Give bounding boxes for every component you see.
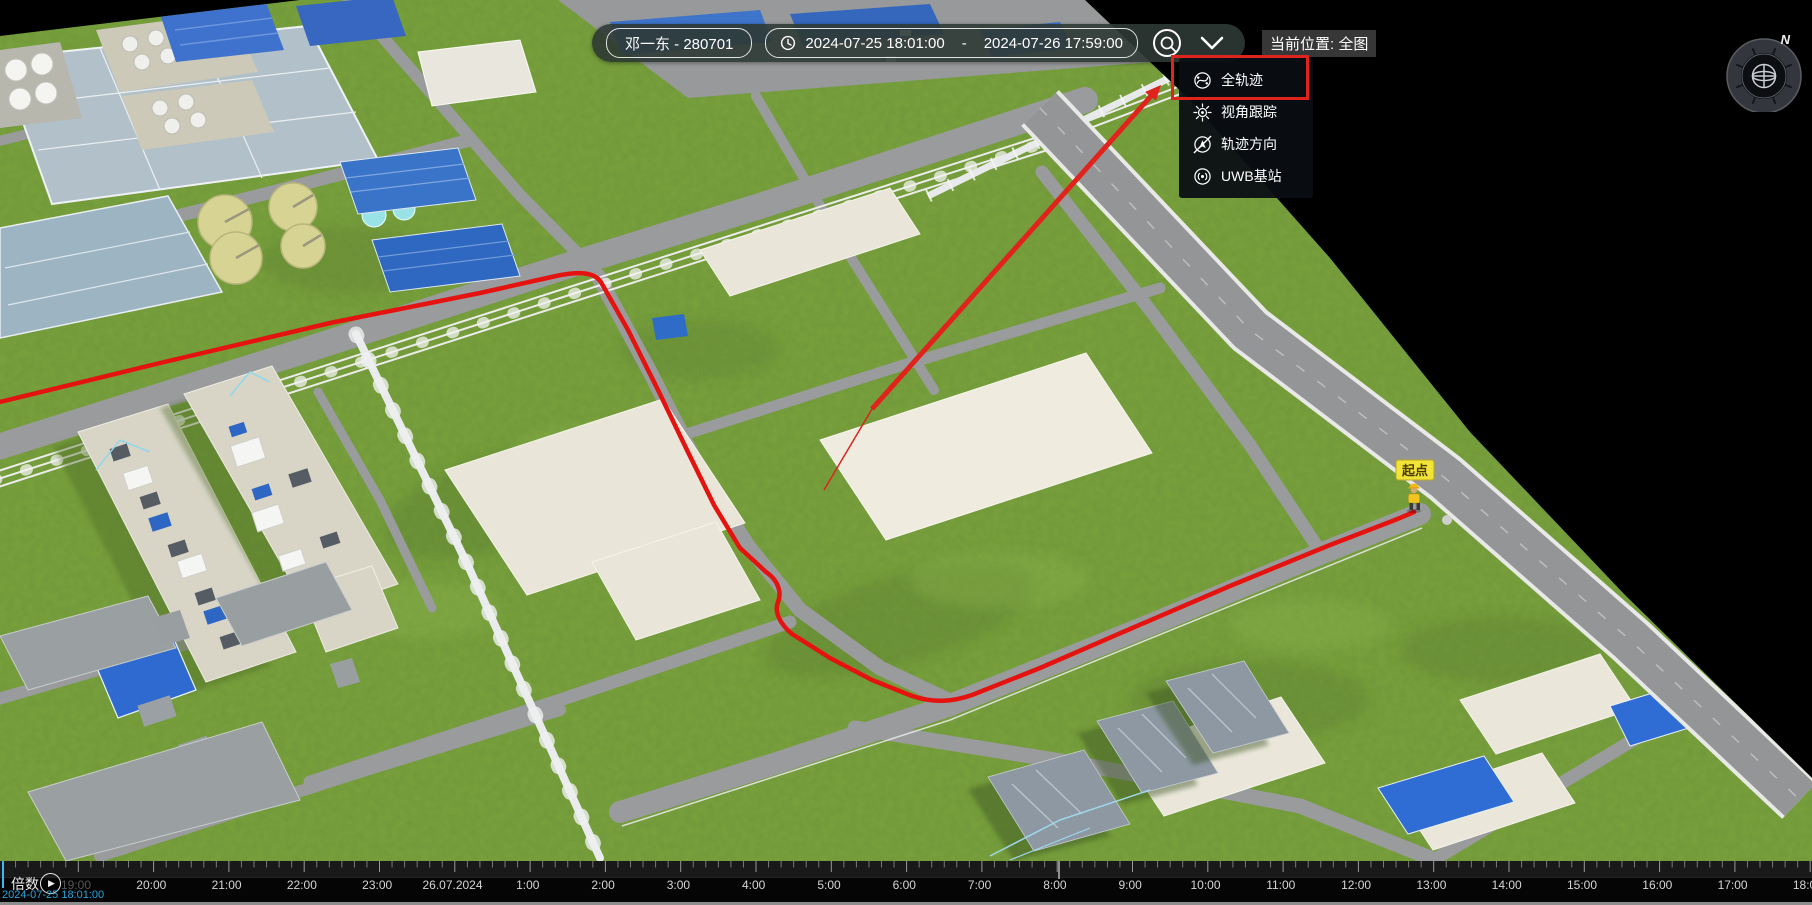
- trajectory-options-menu: 全轨迹 视角跟踪 轨迹方向: [1179, 58, 1313, 198]
- timeline-tick-label: 6:00: [864, 878, 944, 892]
- timeline-tick-label: 15:00: [1542, 878, 1622, 892]
- menu-item-trajectory-direction[interactable]: 轨迹方向: [1179, 128, 1313, 160]
- current-time-label: 2024-07-25 18:01:00: [2, 889, 104, 901]
- timeline-tick-label: 17:00: [1693, 878, 1773, 892]
- menu-item-view-follow[interactable]: 视角跟踪: [1179, 96, 1313, 128]
- time-range-end: 2024-07-26 17:59:00: [984, 35, 1123, 52]
- menu-item-uwb-station[interactable]: UWB基站: [1179, 160, 1313, 192]
- trajectory-direction-icon: [1193, 135, 1212, 154]
- menu-item-label: UWB基站: [1221, 166, 1282, 186]
- timeline-tick-label: 26.07.2024: [413, 878, 493, 892]
- timeline-tick-label: 20:00: [111, 878, 191, 892]
- timeline-tick-label: 10:00: [1166, 878, 1246, 892]
- timeline-track[interactable]: 19:0020:0021:0022:0023:0026.07.20241:002…: [0, 861, 1812, 905]
- full-trajectory-icon: [1193, 71, 1212, 90]
- menu-item-label: 全轨迹: [1221, 70, 1263, 90]
- timeline-tick-label: 16:00: [1617, 878, 1697, 892]
- timeline-playhead[interactable]: [2, 861, 4, 888]
- timeline-tick-label: 3:00: [638, 878, 718, 892]
- person-selector-value: 邓一东 - 280701: [625, 33, 733, 54]
- chevron-down-icon: [1199, 35, 1225, 51]
- menu-item-label: 视角跟踪: [1221, 102, 1277, 122]
- locate-icon: [1152, 28, 1182, 58]
- timeline-tick-label: 22:00: [262, 878, 342, 892]
- time-range-start: 2024-07-25 18:01:00: [805, 35, 944, 52]
- view-follow-icon: [1193, 103, 1212, 122]
- clock-icon: [780, 35, 796, 51]
- app-window: 起点 邓一东 - 280701 2024-07-25 18:01:00 - 20…: [0, 0, 1812, 905]
- timeline-tick-label: 5:00: [789, 878, 869, 892]
- timeline-tick-label: 4:00: [714, 878, 794, 892]
- timeline-tick-label: 8:00: [1015, 878, 1095, 892]
- timeline-tick-label: 2:00: [563, 878, 643, 892]
- menu-item-label: 轨迹方向: [1221, 134, 1277, 154]
- compass-north-label: N: [1781, 32, 1790, 47]
- menu-item-full-trajectory[interactable]: 全轨迹: [1179, 64, 1313, 96]
- timeline-tick-label: 1:00: [488, 878, 568, 892]
- start-label: 起点: [1401, 463, 1428, 478]
- expand-menu-button[interactable]: [1196, 27, 1228, 59]
- uwb-station-icon: [1193, 167, 1212, 186]
- time-range-separator: -: [954, 35, 975, 52]
- timeline-tick-label: 11:00: [1241, 878, 1321, 892]
- timeline-tick-label: 21:00: [187, 878, 267, 892]
- map-3d-view[interactable]: 起点: [0, 0, 1812, 861]
- locate-button[interactable]: [1151, 27, 1183, 59]
- top-toolbar: 邓一东 - 280701 2024-07-25 18:01:00 - 2024-…: [592, 24, 1245, 62]
- timeline-tick-label: 12:00: [1316, 878, 1396, 892]
- timeline-tick-label: 18:00: [1768, 878, 1812, 892]
- time-range-picker[interactable]: 2024-07-25 18:01:00 - 2024-07-26 17:59:0…: [765, 28, 1138, 58]
- timeline-tick-label: 7:00: [940, 878, 1020, 892]
- timeline-tick-label: 14:00: [1467, 878, 1547, 892]
- play-icon: ▶: [48, 878, 55, 889]
- person-selector[interactable]: 邓一东 - 280701: [606, 28, 752, 58]
- compass-control[interactable]: N: [1726, 36, 1802, 112]
- timeline-tick-label: 13:00: [1391, 878, 1471, 892]
- current-location-label: 当前位置: 全图: [1262, 30, 1376, 57]
- timeline-tick-row: [0, 861, 1812, 878]
- timeline-tick-label: 9:00: [1090, 878, 1170, 892]
- globe-crosshair-icon: [1753, 65, 1776, 88]
- timeline-cursor: [1058, 861, 1060, 879]
- timeline-tick-label: 23:00: [337, 878, 417, 892]
